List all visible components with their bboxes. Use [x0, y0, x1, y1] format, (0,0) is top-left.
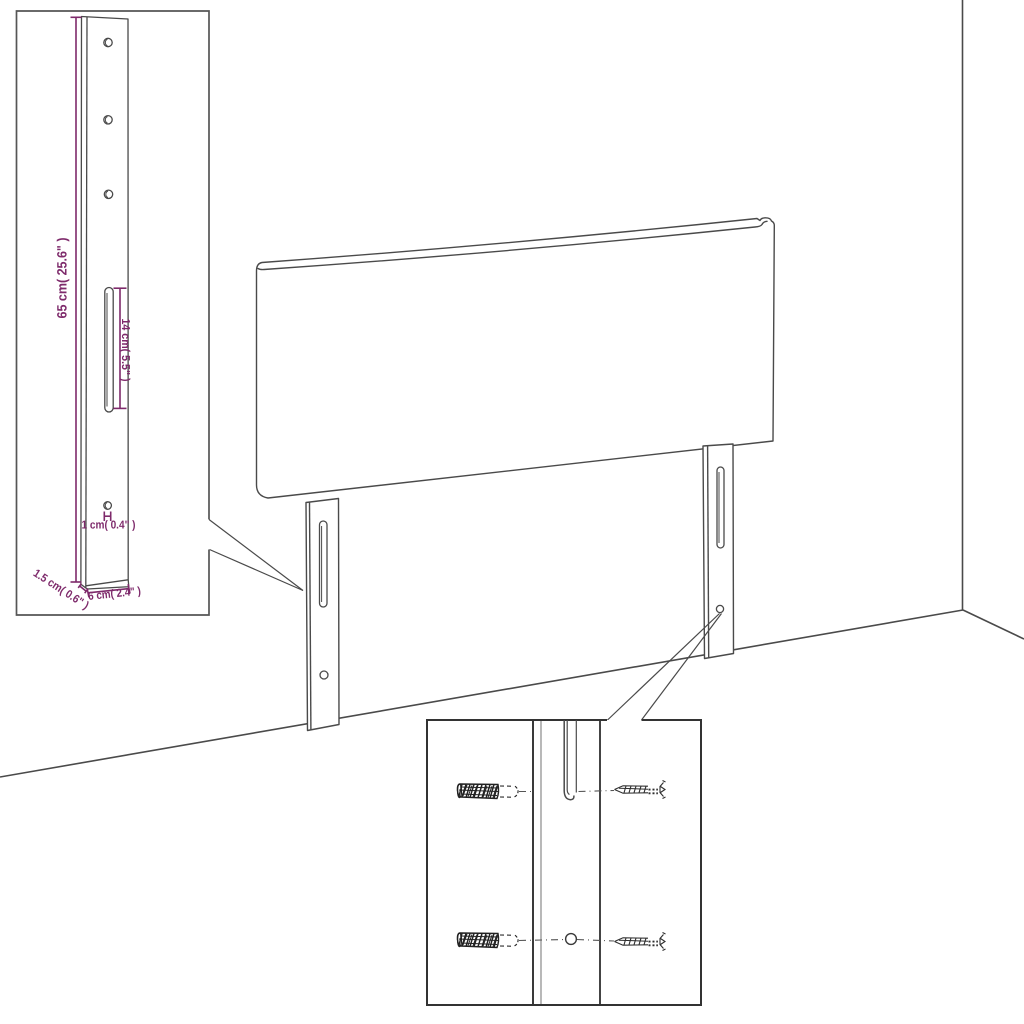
svg-text:14 cm( 5.5" ): 14 cm( 5.5" ) — [119, 319, 131, 382]
svg-text:1 cm( 0.4" ): 1 cm( 0.4" ) — [82, 520, 136, 532]
svg-text:65 cm( 25.6" ): 65 cm( 25.6" ) — [55, 238, 70, 319]
